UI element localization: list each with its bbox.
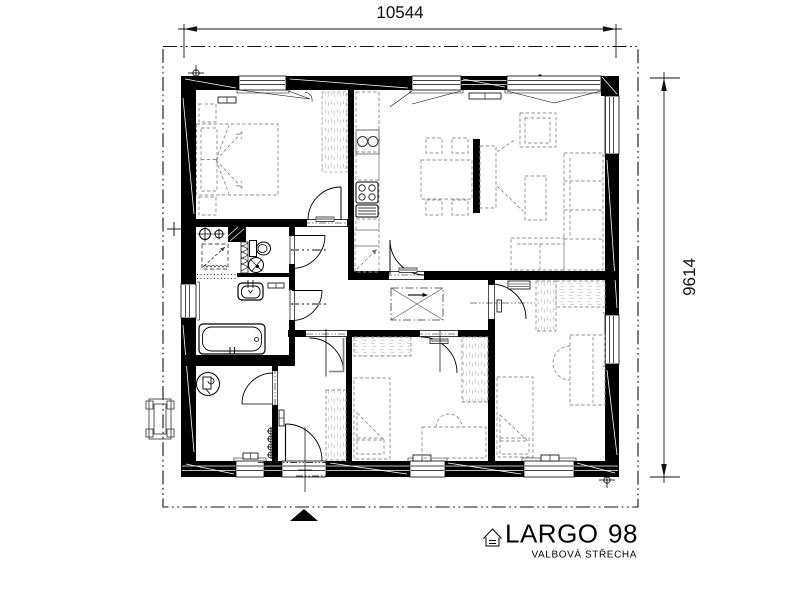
svg-text:LARGO: LARGO [505, 519, 599, 549]
svg-text:9614: 9614 [680, 258, 699, 296]
svg-text:98: 98 [608, 519, 638, 549]
svg-text:10544: 10544 [376, 3, 423, 22]
svg-text:VALBOVÁ STŘECHA: VALBOVÁ STŘECHA [531, 548, 637, 560]
